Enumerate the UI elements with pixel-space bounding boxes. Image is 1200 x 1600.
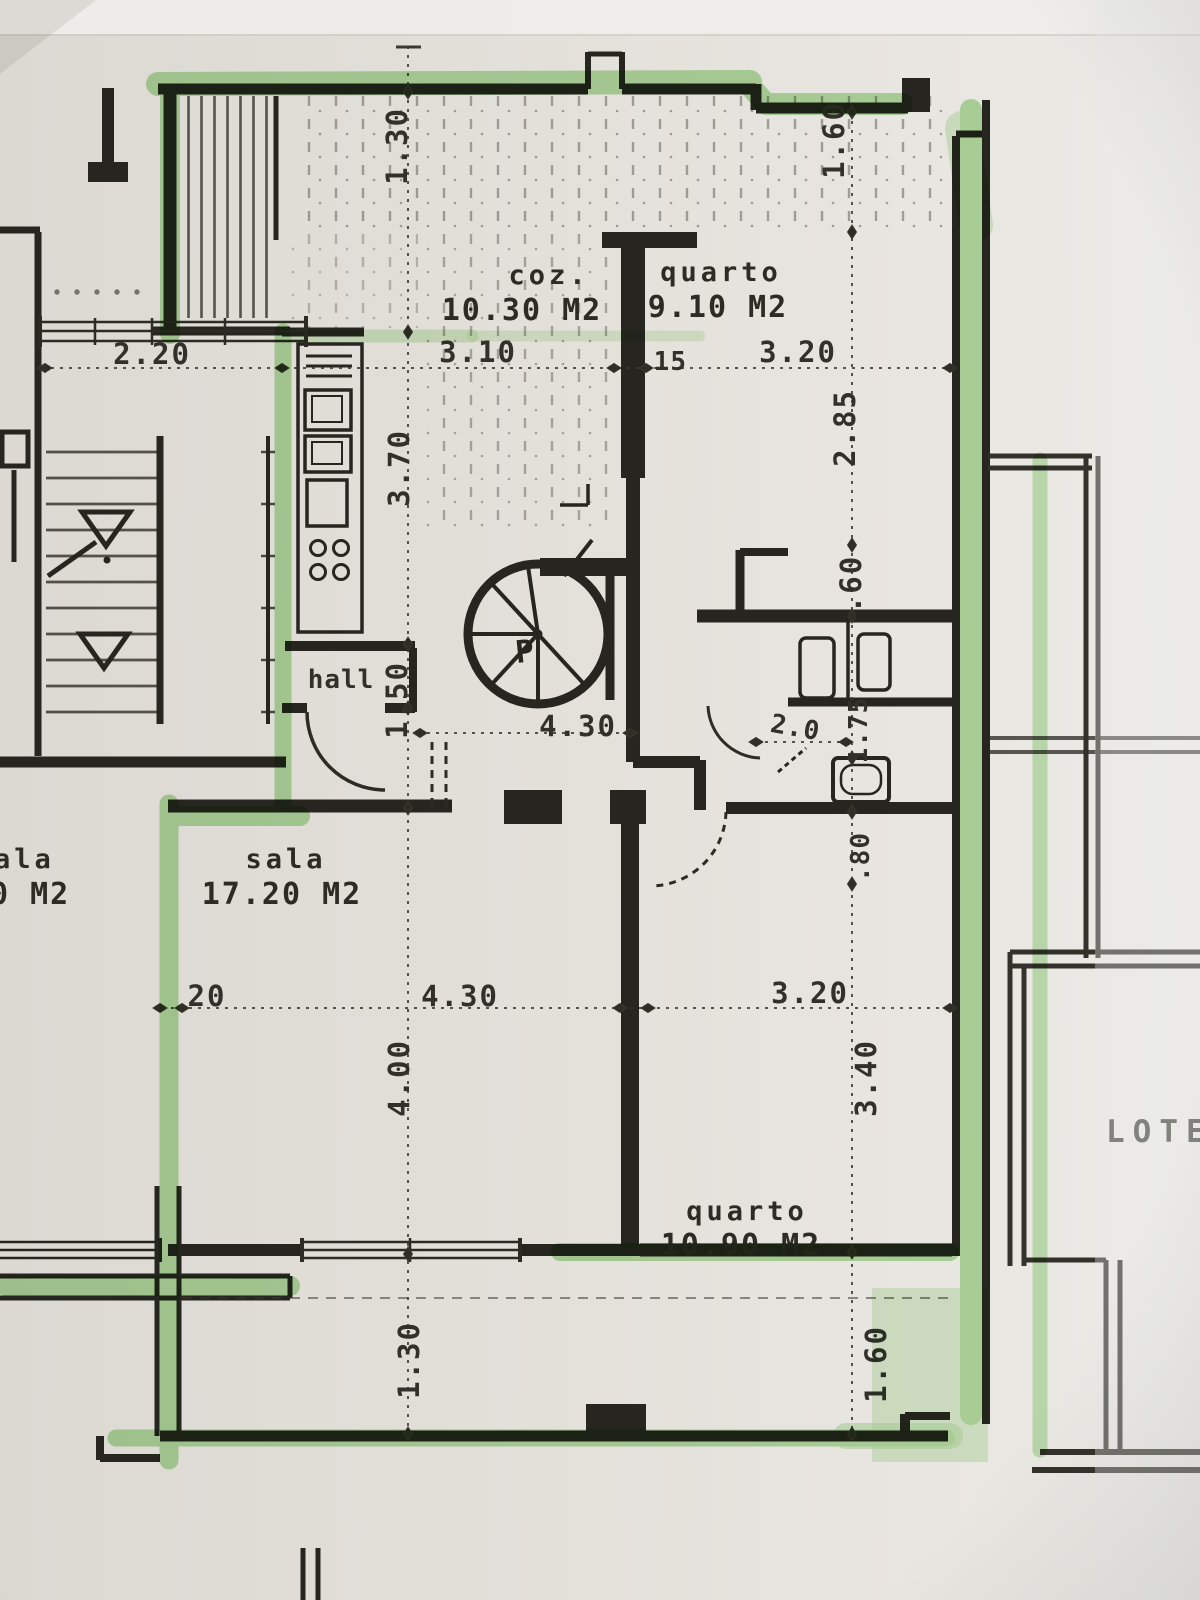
floor-plan-photo: coz. 10.30 M2 quarto 9.10 M2 sala 17.20 … bbox=[0, 0, 1200, 1600]
photo-lighting bbox=[0, 0, 1200, 1600]
floor-plan-drawing: coz. 10.30 M2 quarto 9.10 M2 sala 17.20 … bbox=[0, 0, 1200, 1600]
